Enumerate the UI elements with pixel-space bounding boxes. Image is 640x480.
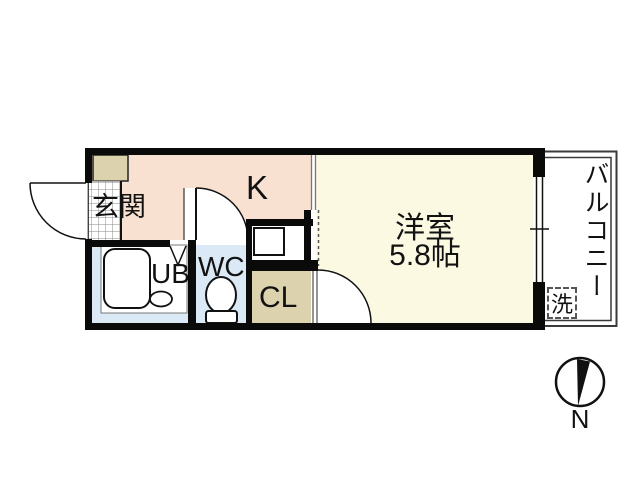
shoe-cabinet (93, 155, 128, 181)
wall-west-upper (85, 148, 92, 183)
balcony-label: バルコニー (582, 161, 607, 311)
washing-machine-space: 洗 (547, 287, 577, 319)
wall-niche-top (246, 219, 313, 226)
north-compass-icon (556, 358, 604, 406)
western-room-size-label: 5.8帖 (373, 241, 477, 271)
toilet-bowl (206, 277, 236, 313)
bathtub (104, 249, 150, 308)
entrance-label: 玄関 (92, 194, 146, 221)
toilet-door-leaf-area (184, 188, 196, 240)
unit-bath-label: UB (151, 260, 190, 288)
toilet-label: WC (198, 253, 245, 281)
bath-drain (150, 292, 172, 307)
wall-east-upper (533, 148, 545, 177)
floor-plan-canvas (0, 0, 640, 480)
wall-north (85, 148, 545, 155)
wall-south (85, 323, 545, 330)
kitchen-sink-box (254, 228, 284, 255)
entrance-door-swing (30, 183, 86, 239)
wall-west-lower (85, 239, 92, 330)
wall-kitchen-room-stub (304, 210, 311, 266)
closet-label: CL (259, 283, 297, 313)
floor-plan: 玄関 K 洋室 5.8帖 UB WC CL バルコニー 洗 N (0, 0, 640, 480)
kitchen-label: K (246, 171, 268, 204)
compass-north-label: N (564, 406, 596, 432)
toilet-tank (206, 311, 237, 323)
wall-bath-top (88, 240, 170, 247)
toilet-door-threshold (196, 240, 248, 245)
wall-east-lower (533, 282, 545, 330)
washing-machine-label: 洗 (551, 287, 573, 319)
